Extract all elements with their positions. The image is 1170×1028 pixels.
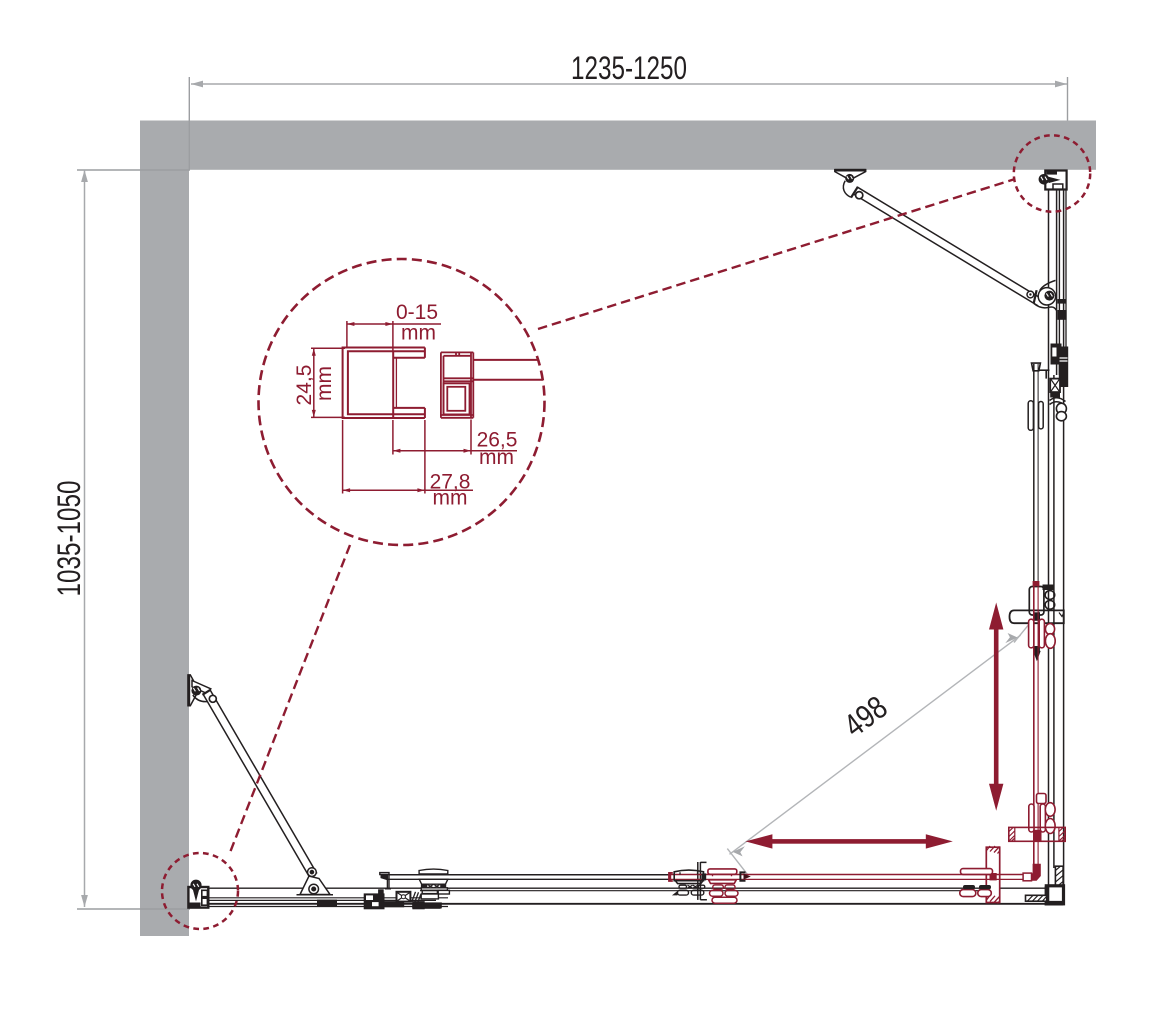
svg-text:1035-1050: 1035-1050 xyxy=(51,481,87,597)
svg-text:mm: mm xyxy=(401,321,436,344)
svg-text:0-15: 0-15 xyxy=(396,301,438,324)
svg-text:1235-1250: 1235-1250 xyxy=(571,50,687,86)
svg-text:mm: mm xyxy=(479,446,514,469)
svg-text:mm: mm xyxy=(433,487,468,510)
svg-text:mm: mm xyxy=(313,366,336,401)
